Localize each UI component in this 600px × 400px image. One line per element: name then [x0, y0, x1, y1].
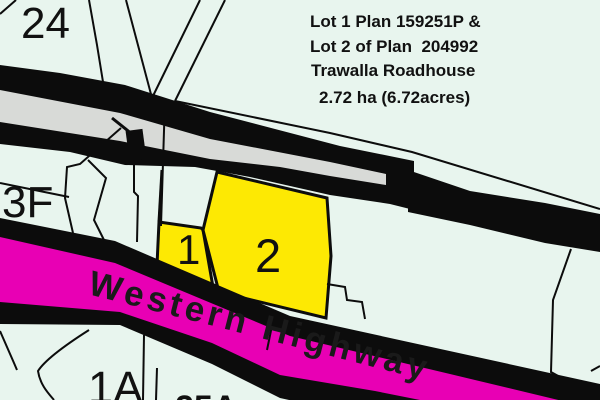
svg-text:2.72 ha (6.72acres): 2.72 ha (6.72acres) [319, 88, 470, 107]
svg-text:3F: 3F [2, 178, 53, 227]
svg-text:24: 24 [21, 0, 70, 48]
svg-text:1: 1 [177, 226, 200, 273]
svg-text:Lot 1 Plan 159251P &: Lot 1 Plan 159251P & [310, 12, 481, 31]
svg-text:2: 2 [255, 229, 281, 282]
svg-text:Lot 2 of Plan 204992: Lot 2 of Plan 204992 [310, 37, 478, 56]
svg-text:Trawalla Roadhouse: Trawalla Roadhouse [311, 61, 475, 80]
svg-text:25A: 25A [175, 389, 237, 400]
svg-text:1A: 1A [88, 362, 143, 400]
